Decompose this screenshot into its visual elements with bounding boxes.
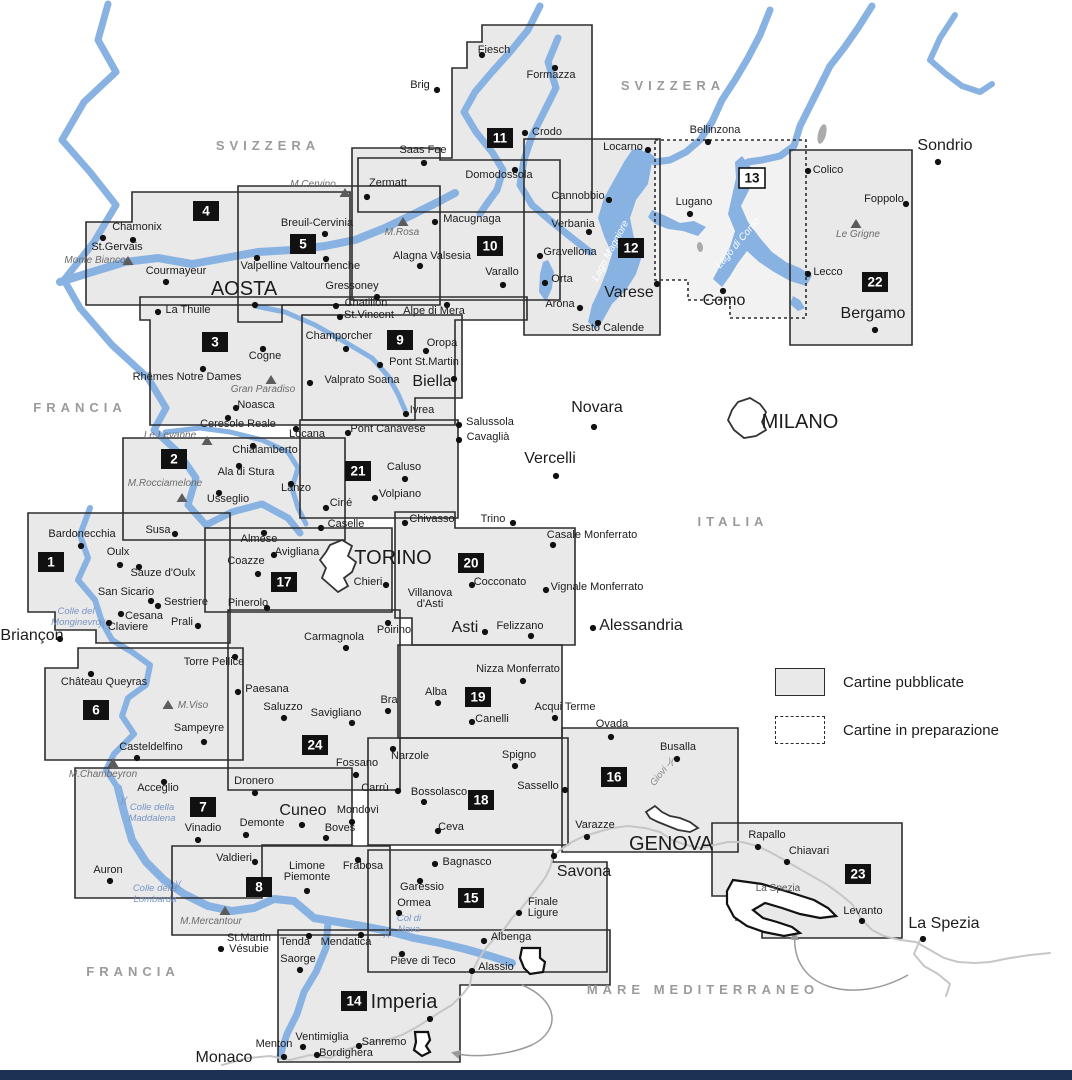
river-9: [748, 6, 872, 162]
city-dot-99: [385, 708, 391, 714]
sheet-number-7: 7: [199, 800, 207, 815]
city-dot-17: [163, 279, 169, 285]
city-label-57: Pont Canavese: [350, 423, 425, 435]
sheet-number-3: 3: [211, 335, 219, 350]
city-dot-3: [522, 130, 528, 136]
region-label-1: SVIZZERA: [621, 78, 725, 93]
city-dot-28: [606, 197, 612, 203]
city-label-41: Champorcher: [306, 330, 373, 342]
city-dot-65: [172, 531, 178, 537]
city-label-29: Verbania: [551, 218, 595, 230]
region-label-5: MARE MEDITERRANEO: [587, 982, 819, 997]
sheet-number-5: 5: [299, 237, 307, 252]
city-label-64: Casale Monferrato: [547, 529, 638, 541]
inset-arrow-1: [454, 985, 552, 1056]
sheet-number-2: 2: [170, 452, 178, 467]
city-label-74: Sauze d'Oulx: [130, 567, 196, 579]
city-label-137: Tenda: [280, 936, 311, 948]
city-label-128: Savona: [557, 863, 611, 880]
city-dot-136: [218, 946, 224, 952]
pass-label-0: Colle delMonginevro: [51, 606, 101, 628]
city-label-12: Bergamo: [841, 305, 906, 322]
city-label-144: Sanremo: [362, 1036, 407, 1048]
city-label-2: Brig: [410, 79, 430, 91]
city-label-50: Novara: [571, 399, 623, 416]
peak-label-8: M.Mercantour: [180, 916, 242, 927]
city-label-145: Monaco: [196, 1049, 253, 1066]
city-dot-128: [551, 853, 557, 859]
city-label-10: Lecco: [813, 266, 842, 278]
city-label-111: Boves: [325, 822, 356, 834]
city-label-95: Saluzzo: [263, 701, 302, 713]
city-dot-12: [872, 327, 878, 333]
city-dot-73: [117, 562, 123, 568]
published-swatch: [775, 668, 825, 696]
city-label-114: Dronero: [234, 775, 274, 787]
city-dot-94: [235, 689, 241, 695]
city-label-3: Crodo: [532, 126, 562, 138]
city-dot-68: [255, 571, 261, 577]
city-label-39: Noasca: [237, 399, 275, 411]
city-dot-45: [451, 376, 457, 382]
city-dot-116: [107, 878, 113, 884]
city-dot-132: [516, 910, 522, 916]
city-label-58: Caluso: [387, 461, 421, 473]
city-label-54: Usseglio: [207, 493, 249, 505]
city-label-138: Mendatica: [321, 936, 373, 948]
city-label-34: Orta: [551, 273, 573, 285]
city-dot-14: [654, 281, 660, 287]
legend: Cartine pubblicate Cartine in preparazio…: [775, 668, 1065, 764]
peak-label-6: M.Viso: [178, 700, 209, 711]
city-label-120: Ceva: [438, 821, 465, 833]
city-dot-126: [859, 918, 865, 924]
city-label-140: Imperia: [371, 991, 439, 1013]
map-canvas: La Spezia SVIZZERASVIZZERAFRANCIAFRANCIA…: [0, 0, 1072, 1080]
legend-preparation-label: Cartine in preparazione: [843, 722, 999, 739]
city-dot-108: [421, 799, 427, 805]
city-label-127: La Spezia: [908, 915, 979, 932]
city-label-53: Ala di Stura: [218, 466, 276, 478]
peak-label-0: Monte Bianco: [64, 255, 126, 266]
city-label-65: Susa: [145, 524, 171, 536]
city-label-5: Locarno: [603, 141, 643, 153]
sheet-number-12: 12: [623, 241, 638, 256]
city-dot-112: [243, 832, 249, 838]
city-dot-32: [500, 282, 506, 288]
city-label-82: Cocconato: [474, 576, 527, 588]
city-label-132: FinaleLigure: [528, 896, 559, 919]
inset-label-0: La Spezia: [756, 883, 801, 894]
city-label-47: Alpe di Mera: [403, 305, 466, 317]
city-label-109: Mondovì: [337, 804, 379, 816]
city-dot-4: [421, 160, 427, 166]
city-dot-127: [920, 936, 926, 942]
city-dot-118: [304, 888, 310, 894]
city-label-139: Saorge: [280, 953, 315, 965]
city-dot-63: [510, 520, 516, 526]
city-dot-105: [353, 772, 359, 778]
city-dot-125: [784, 859, 790, 865]
peak-label-3: Gran Paradiso: [231, 384, 296, 395]
city-label-121: Busalla: [660, 741, 697, 753]
city-dot-102: [608, 734, 614, 740]
city-label-115: Acceglio: [137, 782, 179, 794]
city-label-33: Gravellona: [543, 246, 597, 258]
city-label-143: Bordighera: [319, 1047, 374, 1059]
inset-shape-2: [414, 1032, 430, 1056]
sheet-number-6: 6: [92, 703, 100, 718]
city-dot-24: [155, 309, 161, 315]
city-dot-76: [155, 603, 161, 609]
city-dot-64: [550, 542, 556, 548]
city-dot-129: [432, 861, 438, 867]
city-label-102: Ovada: [596, 718, 629, 730]
city-label-36: Sesto Calende: [572, 322, 644, 334]
pass-label-1: Colle dellaMaddalena: [128, 802, 175, 824]
city-label-0: Fiesch: [478, 44, 510, 56]
city-label-92: Sampeyre: [174, 722, 224, 734]
sheet-number-11: 11: [493, 131, 508, 146]
peak-label-7: M.Chambeyron: [69, 769, 138, 780]
milano-outline: [728, 398, 766, 438]
city-dot-98: [435, 700, 441, 706]
city-label-108: Bossolasco: [411, 786, 467, 798]
city-dot-58: [402, 476, 408, 482]
city-label-96: Savigliano: [311, 707, 362, 719]
sheet-number-18: 18: [473, 793, 489, 808]
river-10: [930, 15, 992, 92]
sheet-number-20: 20: [463, 556, 478, 571]
pass-mark-icon-4: )(: [667, 756, 675, 767]
city-dot-96: [349, 720, 355, 726]
city-label-90: Torre Pellice: [184, 656, 245, 668]
city-dot-139: [297, 967, 303, 973]
city-label-30: Macugnaga: [443, 213, 501, 225]
city-label-8: Foppolo: [864, 193, 904, 205]
city-label-103: Narzole: [391, 750, 429, 762]
city-label-60: Cirié: [330, 497, 353, 509]
city-dot-9: [687, 211, 693, 217]
bottom-bar: [0, 1070, 1072, 1080]
city-label-91: Château Queyras: [61, 676, 148, 688]
city-label-44: Oropa: [427, 337, 458, 349]
city-dot-19: [322, 231, 328, 237]
region-label-2: FRANCIA: [33, 400, 127, 415]
city-dot-95: [281, 715, 287, 721]
city-label-18: Zermatt: [369, 177, 407, 189]
city-dot-131: [396, 910, 402, 916]
city-label-46: Ivrea: [410, 404, 435, 416]
sheet-number-19: 19: [470, 690, 485, 705]
city-label-88: Poirino: [377, 624, 411, 636]
city-dot-121: [674, 756, 680, 762]
city-label-105: Fossano: [336, 757, 378, 769]
city-label-110: Cuneo: [279, 802, 326, 819]
city-label-63: Trino: [481, 513, 506, 525]
city-dot-2: [434, 87, 440, 93]
city-label-76: Sestriere: [164, 596, 208, 608]
city-dot-50: [591, 424, 597, 430]
city-dot-111: [323, 835, 329, 841]
city-label-72: Bardonecchia: [48, 528, 116, 540]
city-label-107: Carrù: [361, 782, 389, 794]
city-label-142: Ventimiglia: [295, 1031, 349, 1043]
city-label-131: Ormea: [397, 897, 432, 909]
city-label-104: Spigno: [502, 749, 536, 761]
city-label-55: Lanzo: [281, 482, 311, 494]
city-dot-142: [300, 1044, 306, 1050]
city-dot-117: [252, 859, 258, 865]
city-label-86: Felizzano: [496, 620, 543, 632]
city-dot-5: [645, 147, 651, 153]
city-dot-31: [417, 263, 423, 269]
city-dot-23: [252, 302, 258, 308]
city-label-42: Pont St.Martin: [389, 356, 459, 368]
city-label-81: MILANO: [762, 411, 839, 433]
city-label-83: Vignale Monferrato: [551, 581, 644, 593]
city-label-27: Domodossola: [465, 169, 533, 181]
sheet-number-22: 22: [867, 275, 882, 290]
city-dot-141: [281, 1054, 287, 1060]
sheet-number-14: 14: [346, 994, 362, 1009]
legend-published-label: Cartine pubblicate: [843, 674, 964, 691]
city-label-1: Formazza: [527, 69, 577, 81]
city-dot-87: [590, 625, 596, 631]
legend-row-preparation: Cartine in preparazione: [775, 716, 1065, 744]
city-label-52: Chialamberto: [232, 444, 297, 456]
city-label-133: Albenga: [491, 931, 532, 943]
city-label-130: Garessio: [400, 881, 444, 893]
city-label-134: Alassio: [478, 961, 513, 973]
city-dot-83: [543, 587, 549, 593]
city-label-89: Carmagnola: [304, 631, 365, 643]
city-label-31: Alagna Valsesia: [393, 250, 472, 262]
city-dot-62: [402, 520, 408, 526]
city-label-98: Alba: [425, 686, 448, 698]
city-label-28: Cannobbio: [551, 190, 604, 202]
city-dot-6: [705, 139, 711, 145]
city-dot-18: [364, 194, 370, 200]
city-label-4: Saas Fee: [399, 144, 446, 156]
city-label-112: Demonte: [240, 817, 285, 829]
city-dot-43: [307, 380, 313, 386]
city-label-93: Casteldelfino: [119, 741, 183, 753]
city-label-136: St.MartinVésubie: [227, 932, 271, 955]
city-label-7: Colico: [813, 164, 844, 176]
city-label-62: Chivasso: [409, 513, 454, 525]
city-dot-89: [343, 645, 349, 651]
city-label-71: Pinerolo: [228, 597, 268, 609]
city-dot-46: [403, 411, 409, 417]
city-label-129: Bagnasco: [443, 856, 492, 868]
city-dot-35: [577, 305, 583, 311]
city-label-17: Courmayeur: [146, 265, 207, 277]
city-label-6: Bellinzona: [690, 124, 742, 136]
city-label-25: Chatillon: [345, 297, 388, 309]
city-dot-97: [520, 678, 526, 684]
peak-label-4: Le Levanne: [144, 430, 197, 441]
city-label-20: Valpelline: [241, 260, 288, 272]
pass-label-2: Colle dellaLombarda: [133, 883, 177, 905]
city-dot-107: [395, 788, 401, 794]
city-dot-61: [318, 525, 324, 531]
city-dot-85: [482, 629, 488, 635]
city-dot-33: [537, 253, 543, 259]
sheet-number-15: 15: [463, 891, 479, 906]
city-dot-30: [432, 219, 438, 225]
city-dot-104: [512, 763, 518, 769]
city-dot-75: [148, 598, 154, 604]
city-dot-42: [377, 362, 383, 368]
city-label-125: Chiavari: [789, 845, 829, 857]
city-dot-11: [935, 159, 941, 165]
city-label-106: Sassello: [517, 780, 559, 792]
city-dot-140: [427, 1016, 433, 1022]
city-label-117: Valdieri: [216, 852, 252, 864]
city-label-45: Biella: [412, 373, 451, 390]
city-label-21: Valtournenche: [290, 260, 360, 272]
coastline-1: [914, 940, 950, 996]
city-label-79: Prali: [171, 616, 193, 628]
city-label-67: Avigliana: [275, 546, 320, 558]
city-label-38: Rhêmes Notre Dames: [133, 371, 242, 383]
city-label-14: Varese: [604, 284, 654, 301]
city-label-9: Lugano: [676, 196, 713, 208]
city-dot-72: [78, 543, 84, 549]
city-dot-49: [456, 437, 462, 443]
city-label-32: Varallo: [485, 266, 518, 278]
pass-label-3: Col diNava: [397, 913, 422, 935]
city-dot-133: [481, 938, 487, 944]
city-label-68: Coazze: [227, 555, 264, 567]
region-label-0: SVIZZERA: [216, 138, 320, 153]
pass-mark-icon-3: )(: [383, 928, 391, 939]
city-dot-92: [201, 739, 207, 745]
sheet-number-13: 13: [744, 171, 760, 186]
city-dot-79: [195, 623, 201, 629]
city-label-75: San Sicario: [98, 586, 154, 598]
city-dot-134: [469, 968, 475, 974]
city-dot-10: [805, 271, 811, 277]
city-label-70: Chieri: [354, 576, 383, 588]
city-label-118: LimonePiemonte: [284, 860, 330, 883]
city-dot-113: [195, 837, 201, 843]
pass-mark-icon-0: )(: [98, 618, 106, 629]
city-label-23: AOSTA: [211, 278, 278, 300]
sheet-number-8: 8: [255, 880, 263, 895]
city-label-97: Nizza Monferrato: [476, 663, 560, 675]
city-dot-51: [553, 473, 559, 479]
city-label-94: Paesana: [245, 683, 289, 695]
city-label-37: Cogne: [249, 350, 281, 362]
sheet-number-4: 4: [202, 204, 210, 219]
city-label-35: Arona: [545, 298, 575, 310]
city-label-11: Sondrio: [917, 137, 972, 154]
city-dot-106: [562, 787, 568, 793]
pass-mark-icon-1: )(: [120, 795, 128, 806]
peak-label-1: M.Cervino: [290, 179, 336, 190]
city-dot-25: [333, 303, 339, 309]
city-label-15: Chamonix: [112, 221, 162, 233]
city-label-135: Pieve di Teco: [390, 955, 455, 967]
legend-row-published: Cartine pubblicate: [775, 668, 1065, 696]
sheet-number-1: 1: [47, 555, 55, 570]
city-label-87: Alessandria: [599, 617, 683, 634]
city-label-113: Vinadio: [185, 822, 222, 834]
preparation-swatch: [775, 716, 825, 744]
city-label-43: Valprato Soana: [324, 374, 400, 386]
city-label-51: Vercelli: [524, 450, 576, 467]
city-label-100: Canelli: [475, 713, 509, 725]
region-label-3: FRANCIA: [86, 964, 180, 979]
city-dot-7: [805, 168, 811, 174]
city-label-13: Como: [703, 292, 746, 309]
city-dot-77: [118, 611, 124, 617]
city-dot-41: [343, 346, 349, 352]
city-dot-59: [372, 495, 378, 501]
city-label-99: Bra: [380, 694, 398, 706]
city-label-69: TORINO: [354, 547, 431, 569]
city-dot-93: [134, 755, 140, 761]
city-label-59: Volpiano: [379, 488, 421, 500]
sheet-number-9: 9: [396, 333, 404, 348]
city-dot-110: [299, 822, 305, 828]
city-label-85: Asti: [452, 619, 479, 636]
gray-lake-blob-0: [816, 123, 829, 144]
city-label-48: Salussola: [466, 416, 515, 428]
sheet-number-16: 16: [606, 770, 622, 785]
city-label-78: Claviere: [108, 621, 148, 633]
city-dot-34: [542, 280, 548, 286]
peak-label-9: Le Grigne: [836, 229, 880, 240]
city-dot-114: [252, 790, 258, 796]
city-label-19: Breuil-Cervinia: [281, 217, 354, 229]
city-label-124: Rapallo: [748, 829, 785, 841]
city-dot-124: [755, 844, 761, 850]
city-label-49: Cavaglià: [467, 431, 511, 443]
city-label-66: Almese: [241, 533, 278, 545]
city-label-40: Ceresole Reale: [200, 418, 276, 430]
city-label-80: Briançon: [0, 627, 63, 644]
city-dot-60: [323, 505, 329, 511]
city-label-122: Varazze: [575, 819, 615, 831]
sheet-number-17: 17: [276, 575, 291, 590]
city-label-22: Gressoney: [325, 280, 379, 292]
city-dot-101: [552, 715, 558, 721]
city-label-101: Acqui Terme: [535, 701, 596, 713]
city-dot-70: [383, 582, 389, 588]
sheet-number-24: 24: [307, 738, 323, 753]
sheet-number-10: 10: [482, 239, 497, 254]
city-label-16: St.Gervais: [91, 241, 143, 253]
city-label-119: Frabosa: [343, 860, 384, 872]
city-dot-26: [337, 314, 343, 320]
city-label-123: GENOVA: [629, 833, 714, 855]
peak-label-2: M.Rosa: [385, 227, 420, 238]
city-dot-100: [469, 719, 475, 725]
peak-label-5: M.Rocciamelone: [128, 478, 203, 489]
city-dot-122: [584, 834, 590, 840]
city-label-24: La Thuile: [165, 304, 210, 316]
city-label-56: Locana: [289, 428, 326, 440]
sheet-number-21: 21: [350, 464, 366, 479]
map-index-page: La Spezia SVIZZERASVIZZERAFRANCIAFRANCIA…: [0, 0, 1072, 1080]
city-label-26: St.Vincent: [344, 309, 394, 321]
city-dot-48: [456, 422, 462, 428]
city-label-126: Levanto: [843, 905, 882, 917]
city-label-141: Menton: [256, 1038, 293, 1050]
